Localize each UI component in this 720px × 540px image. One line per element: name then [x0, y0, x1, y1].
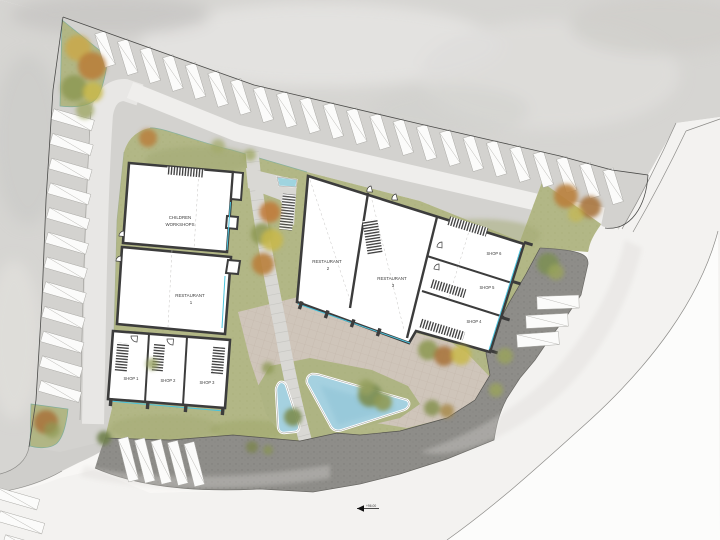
svg-text:SHOP 3: SHOP 3: [200, 380, 216, 385]
svg-text:SHOP 6: SHOP 6: [487, 251, 503, 256]
svg-text:RESTAURANT: RESTAURANT: [312, 259, 342, 264]
svg-text:SHOP 4: SHOP 4: [467, 319, 483, 324]
svg-text:SHOP 1: SHOP 1: [124, 376, 140, 381]
svg-text:WORKSHOPS: WORKSHOPS: [165, 222, 194, 227]
svg-text:CHILDREN: CHILDREN: [169, 215, 191, 220]
svg-text:RESTAURANT: RESTAURANT: [377, 276, 407, 281]
svg-text:SHOP 2: SHOP 2: [161, 378, 177, 383]
svg-text:SHOP 5: SHOP 5: [480, 285, 496, 290]
svg-text:RESTAURANT: RESTAURANT: [175, 293, 205, 298]
svg-text:+96.00: +96.00: [366, 504, 376, 508]
